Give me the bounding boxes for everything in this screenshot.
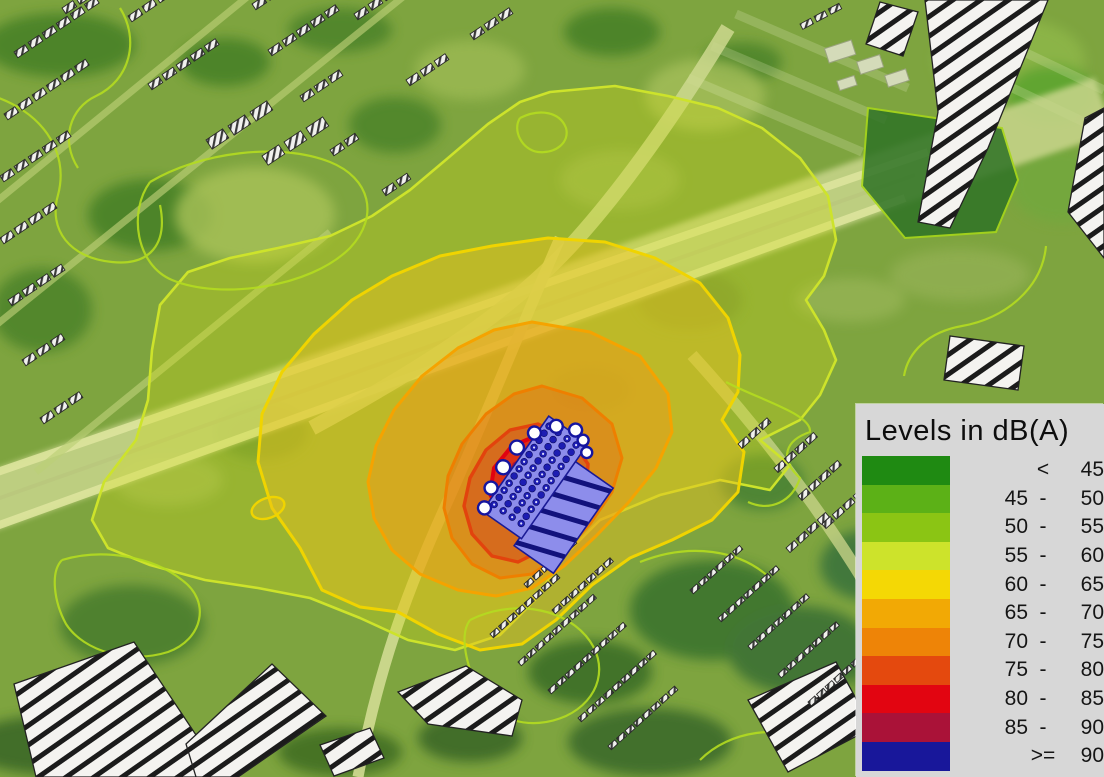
legend-label-part: 50 [982,515,1028,539]
legend-label-part: - [1028,658,1058,682]
legend-label-part: 90 [1058,716,1104,740]
legend-label-part: - [1028,487,1058,511]
legend-label-part: 65 [1058,573,1104,597]
legend-label-65-70: 65-70 [982,601,1104,625]
legend-row-50-55: 50-55 [856,513,1104,542]
legend-label-80-85: 80-85 [982,687,1104,711]
legend-label-part: 45 [982,487,1028,511]
legend-swatch-75-80 [862,656,950,685]
legend-swatch-45-50 [862,485,950,514]
legend-row-lt-45: <45 [856,456,1104,485]
legend-rows: <4545-5050-5555-6060-6565-7070-7575-8080… [856,456,1104,771]
legend-row-55-60: 55-60 [856,542,1104,571]
legend-label-part: 55 [982,544,1028,568]
noise-map-screenshot: Levels in dB(A) <4545-5050-5555-6060-656… [0,0,1104,777]
legend-swatch-60-65 [862,570,950,599]
legend-swatch-65-70 [862,599,950,628]
legend-row-45-50: 45-50 [856,485,1104,514]
legend-label-part: 80 [982,687,1028,711]
legend-row-ge-90: >=90 [856,742,1104,771]
legend-label-part: < [1028,458,1058,482]
legend-row-70-75: 70-75 [856,628,1104,657]
legend-label-part: - [1028,630,1058,654]
legend-label-part: 50 [1058,487,1104,511]
legend-row-85-90: 85-90 [856,713,1104,742]
legend-label-45-50: 45-50 [982,487,1104,511]
legend-label-part: 85 [982,716,1028,740]
legend-label-part: 45 [1058,458,1104,482]
legend-label-part: 65 [982,601,1028,625]
legend-row-60-65: 60-65 [856,570,1104,599]
legend-label-85-90: 85-90 [982,716,1104,740]
legend-swatch-ge-90 [862,742,950,771]
legend-row-75-80: 75-80 [856,656,1104,685]
legend-label-60-65: 60-65 [982,573,1104,597]
legend-label-50-55: 50-55 [982,515,1104,539]
legend-label-part: - [1028,544,1058,568]
legend-swatch-55-60 [862,542,950,571]
legend-label-part: >= [1028,744,1058,768]
legend-label-part: - [1028,573,1058,597]
legend-label-55-60: 55-60 [982,544,1104,568]
legend-label-75-80: 75-80 [982,658,1104,682]
legend-label-70-75: 70-75 [982,630,1104,654]
legend-swatch-85-90 [862,713,950,742]
legend-label-part: 75 [1058,630,1104,654]
legend-panel: Levels in dB(A) <4545-5050-5555-6060-656… [856,404,1104,777]
legend-swatch-70-75 [862,628,950,657]
legend-swatch-lt-45 [862,456,950,485]
legend-label-part: 55 [1058,515,1104,539]
legend-row-65-70: 65-70 [856,599,1104,628]
legend-label-part: 70 [982,630,1028,654]
legend-swatch-50-55 [862,513,950,542]
legend-row-80-85: 80-85 [856,685,1104,714]
legend-label-part: 75 [982,658,1028,682]
legend-label-ge-90: >=90 [982,744,1104,768]
legend-swatch-80-85 [862,685,950,714]
legend-label-part: 85 [1058,687,1104,711]
legend-title: Levels in dB(A) [856,404,1104,456]
legend-label-lt-45: <45 [982,458,1104,482]
legend-label-part: 80 [1058,658,1104,682]
legend-label-part: 70 [1058,601,1104,625]
legend-label-part: 90 [1058,744,1104,768]
legend-label-part: - [1028,716,1058,740]
legend-label-part: - [1028,601,1058,625]
legend-label-part: - [1028,515,1058,539]
legend-label-part: 60 [1058,544,1104,568]
legend-label-part: 60 [982,573,1028,597]
legend-label-part: - [1028,687,1058,711]
